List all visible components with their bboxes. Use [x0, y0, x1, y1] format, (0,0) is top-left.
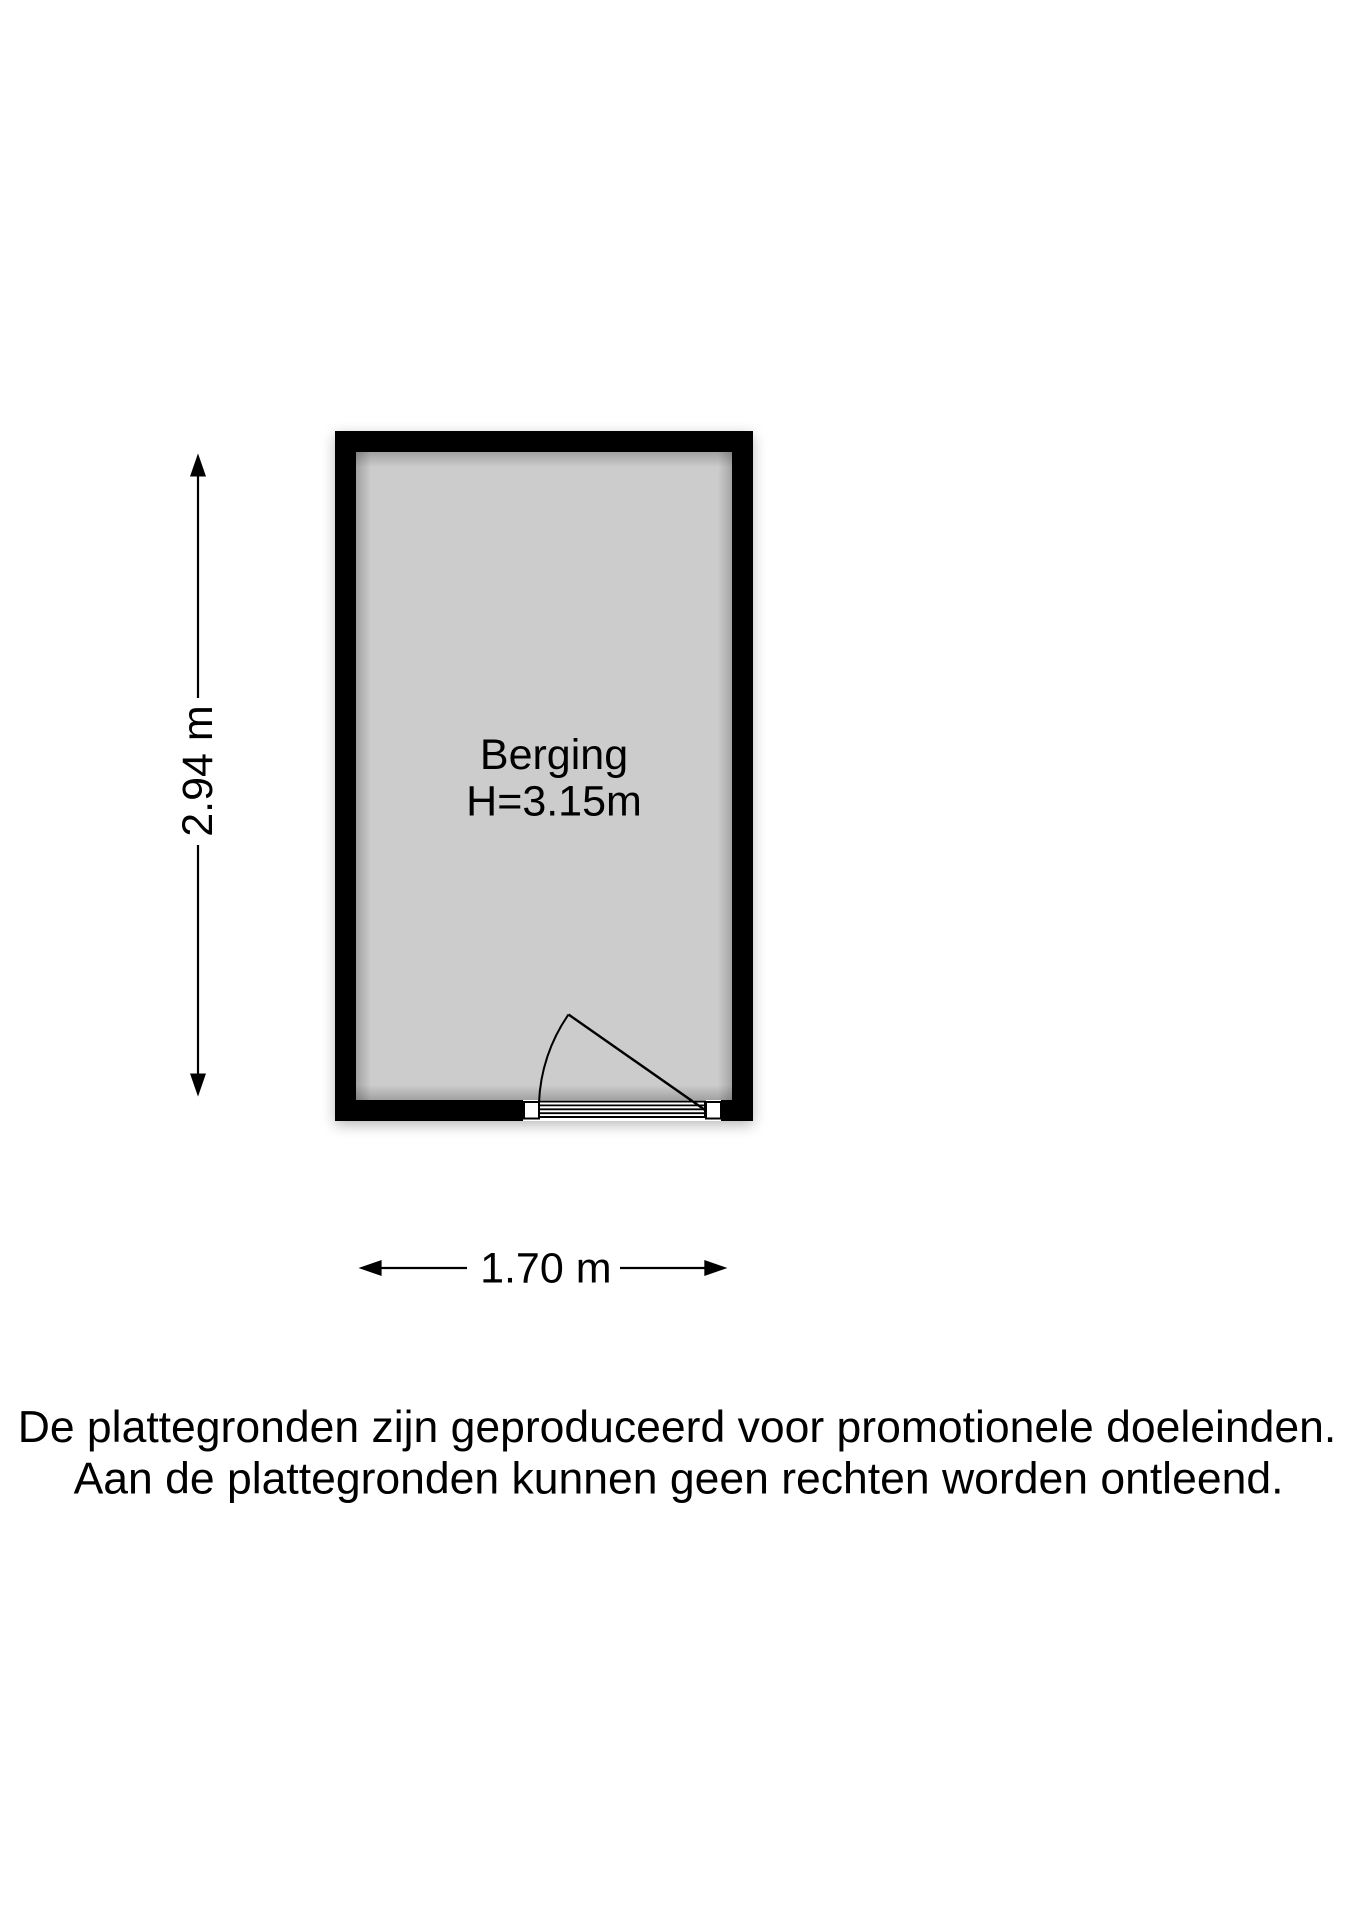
svg-text:Aan de plattegronden kunnen ge: Aan de plattegronden kunnen geen rechten…: [74, 1455, 1284, 1504]
svg-text:De plattegronden zijn geproduc: De plattegronden zijn geproduceerd voor …: [18, 1403, 1337, 1452]
svg-text:2.94 m: 2.94 m: [174, 705, 222, 836]
svg-text:H=3.15m: H=3.15m: [466, 778, 642, 826]
svg-text:Berging: Berging: [480, 731, 628, 779]
svg-text:1.70 m: 1.70 m: [480, 1244, 611, 1292]
